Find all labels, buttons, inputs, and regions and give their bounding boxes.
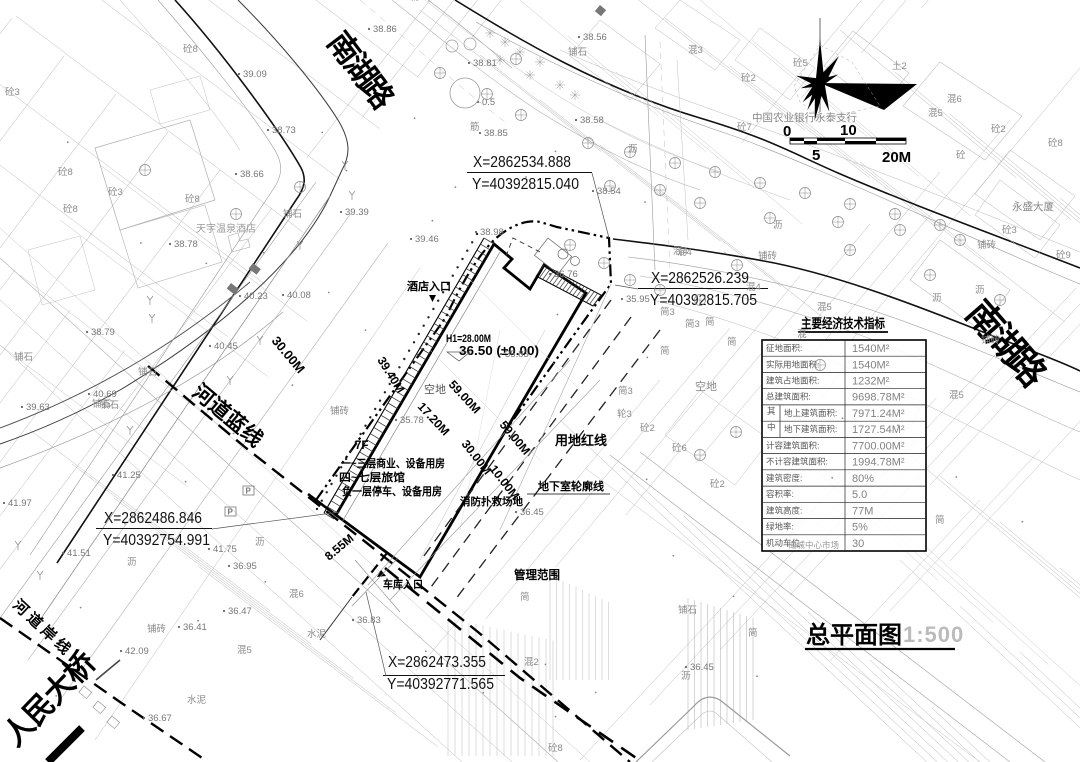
svg-text:铺石: 铺石 [568, 46, 587, 58]
svg-text:容积率:: 容积率: [766, 489, 794, 499]
svg-text:中国农业银行永泰支行: 中国农业银行永泰支行 [752, 111, 857, 124]
svg-text:混4: 混4 [677, 247, 692, 258]
svg-text:77M: 77M [852, 505, 873, 517]
svg-text:混5: 混5 [817, 302, 832, 313]
svg-text:水泥: 水泥 [307, 628, 327, 640]
svg-text:地下建筑面积:: 地下建筑面积: [784, 424, 837, 434]
svg-text:砼2: 砼2 [710, 478, 725, 490]
svg-text:36.83: 36.83 [357, 615, 381, 626]
svg-text:用地红线: 用地红线 [554, 433, 607, 448]
svg-text:建筑密度:: 建筑密度: [766, 473, 802, 483]
svg-text:橄城中心市场: 橄城中心市场 [788, 540, 839, 550]
svg-text:空地: 空地 [424, 382, 446, 396]
svg-text:7700.00M²: 7700.00M² [852, 440, 905, 452]
svg-text:35.83: 35.83 [505, 349, 529, 360]
svg-text:沥: 沥 [932, 293, 942, 304]
svg-text:9698.78M²: 9698.78M² [852, 392, 905, 404]
svg-text:1727.54M²: 1727.54M² [852, 424, 905, 436]
svg-text:39.63: 39.63 [26, 402, 50, 413]
svg-text:铺石: 铺石 [138, 366, 157, 378]
svg-text:四~七层旅馆: 四~七层旅馆 [339, 470, 405, 484]
svg-text:7971.24M²: 7971.24M² [852, 408, 905, 420]
svg-text:不计容建筑面积:: 不计容建筑面积: [766, 457, 828, 467]
svg-text:36.47: 36.47 [228, 606, 252, 617]
svg-text:砼8: 砼8 [63, 203, 78, 215]
svg-text:砼7: 砼7 [737, 121, 752, 133]
svg-text:36.45: 36.45 [520, 507, 544, 518]
svg-text:38.98: 38.98 [480, 227, 504, 238]
svg-text:简3: 简3 [685, 318, 700, 330]
svg-text:实际用地面积:: 实际用地面积: [766, 359, 819, 369]
svg-text:砼8: 砼8 [1048, 137, 1063, 149]
svg-text:混6: 混6 [947, 94, 962, 105]
svg-text:筋: 筋 [470, 121, 480, 133]
svg-text:10: 10 [840, 122, 857, 139]
svg-text:X=2862526.239: X=2862526.239 [651, 270, 749, 287]
svg-text:38.81: 38.81 [473, 58, 497, 69]
svg-text:砼5: 砼5 [793, 57, 808, 69]
svg-text:天宇温泉酒店: 天宇温泉酒店 [196, 222, 256, 235]
svg-text:Y=40392754.991: Y=40392754.991 [103, 532, 210, 549]
svg-text:1994.78M²: 1994.78M² [852, 457, 905, 469]
svg-text:建筑高度:: 建筑高度: [766, 505, 802, 515]
svg-text:42.09: 42.09 [125, 646, 149, 657]
svg-text:80%: 80% [852, 473, 874, 485]
svg-text:38.78: 38.78 [174, 239, 198, 250]
svg-text:砼8: 砼8 [58, 166, 73, 178]
svg-text:41.97: 41.97 [8, 498, 32, 509]
svg-text:36.95: 36.95 [233, 561, 257, 572]
svg-text:X=2862473.355: X=2862473.355 [388, 654, 486, 671]
svg-text:一~三层商业、设备用房: 一~三层商业、设备用房 [341, 456, 445, 470]
svg-text:中: 中 [767, 422, 776, 432]
svg-text:铺砖: 铺砖 [758, 250, 778, 262]
svg-text:沥: 沥 [628, 144, 638, 155]
svg-text:混2: 混2 [524, 657, 539, 668]
svg-text:39.39: 39.39 [345, 207, 369, 218]
svg-text:P: P [246, 487, 252, 496]
svg-text:39.46: 39.46 [415, 234, 439, 245]
svg-text:20M: 20M [882, 149, 911, 166]
svg-text:砼3: 砼3 [5, 86, 20, 98]
svg-text:38.66: 38.66 [240, 169, 264, 180]
svg-text:地下室轮廓线: 地下室轮廓线 [538, 479, 604, 493]
svg-text:车库入口: 车库入口 [383, 577, 423, 591]
svg-text:铺砖: 铺砖 [147, 623, 167, 635]
svg-text:39.09: 39.09 [243, 69, 267, 80]
svg-text:砼8: 砼8 [185, 193, 200, 205]
svg-text:砼3: 砼3 [108, 186, 123, 198]
svg-text:其: 其 [767, 406, 776, 416]
svg-text:38.73: 38.73 [272, 125, 296, 136]
svg-text:38.58: 38.58 [580, 115, 604, 126]
svg-text:X=2862534.888: X=2862534.888 [473, 154, 571, 171]
svg-text:主要经济技术指标: 主要经济技术指标 [801, 316, 885, 331]
svg-text:砼3: 砼3 [1002, 224, 1017, 236]
svg-text:酒店入口: 酒店入口 [407, 279, 451, 293]
svg-text:管理范围: 管理范围 [514, 567, 560, 582]
svg-text:35.78: 35.78 [400, 415, 424, 426]
svg-text:简: 简 [727, 336, 737, 348]
svg-text:永盛大厦: 永盛大厦 [1012, 200, 1054, 213]
svg-text:沥: 沥 [681, 671, 691, 682]
svg-text:36.41: 36.41 [183, 622, 207, 633]
svg-text:地上建筑面积:: 地上建筑面积: [784, 408, 837, 418]
svg-text:简: 简 [520, 591, 530, 603]
svg-text:空地: 空地 [695, 379, 717, 393]
svg-text:5.0: 5.0 [852, 489, 867, 501]
svg-text:混: 混 [797, 329, 807, 340]
svg-text:砼2: 砼2 [640, 422, 655, 434]
svg-text:建筑占地面积:: 建筑占地面积: [766, 376, 819, 386]
svg-text:计容建筑面积:: 计容建筑面积: [766, 440, 819, 450]
svg-text:铺石: 铺石 [678, 604, 697, 616]
svg-text:5: 5 [812, 147, 820, 164]
svg-text:绿地率:: 绿地率: [766, 522, 794, 532]
svg-text:混5: 混5 [928, 108, 943, 119]
svg-text:征地面积:: 征地面积: [766, 343, 802, 353]
svg-text:Y=40392815.040: Y=40392815.040 [472, 176, 579, 193]
svg-text:简: 简 [660, 345, 670, 357]
svg-text:简: 简 [705, 316, 715, 328]
svg-text:Y=40392771.565: Y=40392771.565 [387, 676, 494, 693]
svg-text:38.56: 38.56 [583, 32, 607, 43]
svg-text:7F: 7F [355, 440, 368, 452]
svg-text:砼8: 砼8 [548, 742, 563, 754]
svg-text:沥: 沥 [975, 285, 985, 296]
svg-text:铺砖: 铺砖 [981, 334, 1001, 346]
svg-text:36.45: 36.45 [690, 662, 714, 673]
svg-text:土2: 土2 [892, 60, 907, 72]
svg-text:负一层停车、设备用房: 负一层停车、设备用房 [342, 484, 442, 498]
svg-text:1232M²: 1232M² [852, 376, 890, 388]
svg-text:轮3: 轮3 [617, 408, 632, 420]
svg-text:沥: 沥 [255, 537, 265, 548]
svg-text:砼6: 砼6 [672, 442, 687, 454]
svg-text:沥: 沥 [127, 557, 137, 568]
svg-text:砼8: 砼8 [183, 43, 198, 55]
svg-text:40.23: 40.23 [244, 291, 268, 302]
svg-text:砼2: 砼2 [741, 72, 756, 84]
svg-text:38.85: 38.85 [484, 128, 508, 139]
svg-text:1540M²: 1540M² [852, 359, 890, 371]
svg-text:铺石: 铺石 [14, 351, 33, 363]
svg-text:1540M²: 1540M² [852, 343, 890, 355]
svg-text:38.86: 38.86 [373, 24, 397, 35]
svg-text:P: P [228, 508, 234, 517]
svg-text:5%: 5% [852, 522, 868, 534]
svg-text:40.45: 40.45 [214, 341, 238, 352]
svg-text:镇石: 镇石 [100, 399, 119, 411]
svg-text:混5: 混5 [949, 390, 964, 401]
svg-text:36.67: 36.67 [148, 713, 172, 724]
svg-text:简: 简 [935, 514, 945, 526]
svg-text:铺石: 铺石 [283, 208, 302, 220]
svg-text:41.25: 41.25 [117, 470, 141, 481]
svg-text:40.08: 40.08 [287, 290, 311, 301]
svg-text:41.75: 41.75 [213, 544, 237, 555]
svg-text:35.95: 35.95 [626, 294, 650, 305]
svg-text:混4: 混4 [746, 282, 761, 293]
svg-text:简3: 简3 [618, 385, 633, 397]
svg-text:铺砖: 铺砖 [977, 239, 997, 251]
svg-text:36.76: 36.76 [554, 269, 578, 280]
svg-text:砼2: 砼2 [991, 123, 1006, 135]
svg-text:30: 30 [852, 538, 864, 550]
svg-text:水泥: 水泥 [187, 694, 207, 706]
svg-text:总建筑面积:: 总建筑面积: [766, 392, 811, 402]
svg-text:1:500: 1:500 [903, 622, 964, 647]
svg-text:铺砖: 铺砖 [330, 405, 350, 417]
svg-text:简: 简 [748, 627, 758, 639]
svg-text:砼: 砼 [956, 149, 966, 161]
svg-text:混6: 混6 [289, 589, 304, 600]
svg-text:沥: 沥 [410, 0, 420, 3]
svg-text:41.51: 41.51 [67, 548, 91, 559]
svg-text:38.79: 38.79 [91, 327, 115, 338]
svg-text:混5: 混5 [237, 645, 252, 656]
svg-text:0: 0 [783, 123, 791, 140]
svg-text:砼9: 砼9 [1056, 249, 1071, 261]
svg-text:简3: 简3 [660, 306, 675, 318]
svg-text:X=2862486.846: X=2862486.846 [104, 510, 202, 527]
svg-text:总平面图: 总平面图 [806, 621, 902, 649]
svg-text:混3: 混3 [688, 45, 703, 56]
